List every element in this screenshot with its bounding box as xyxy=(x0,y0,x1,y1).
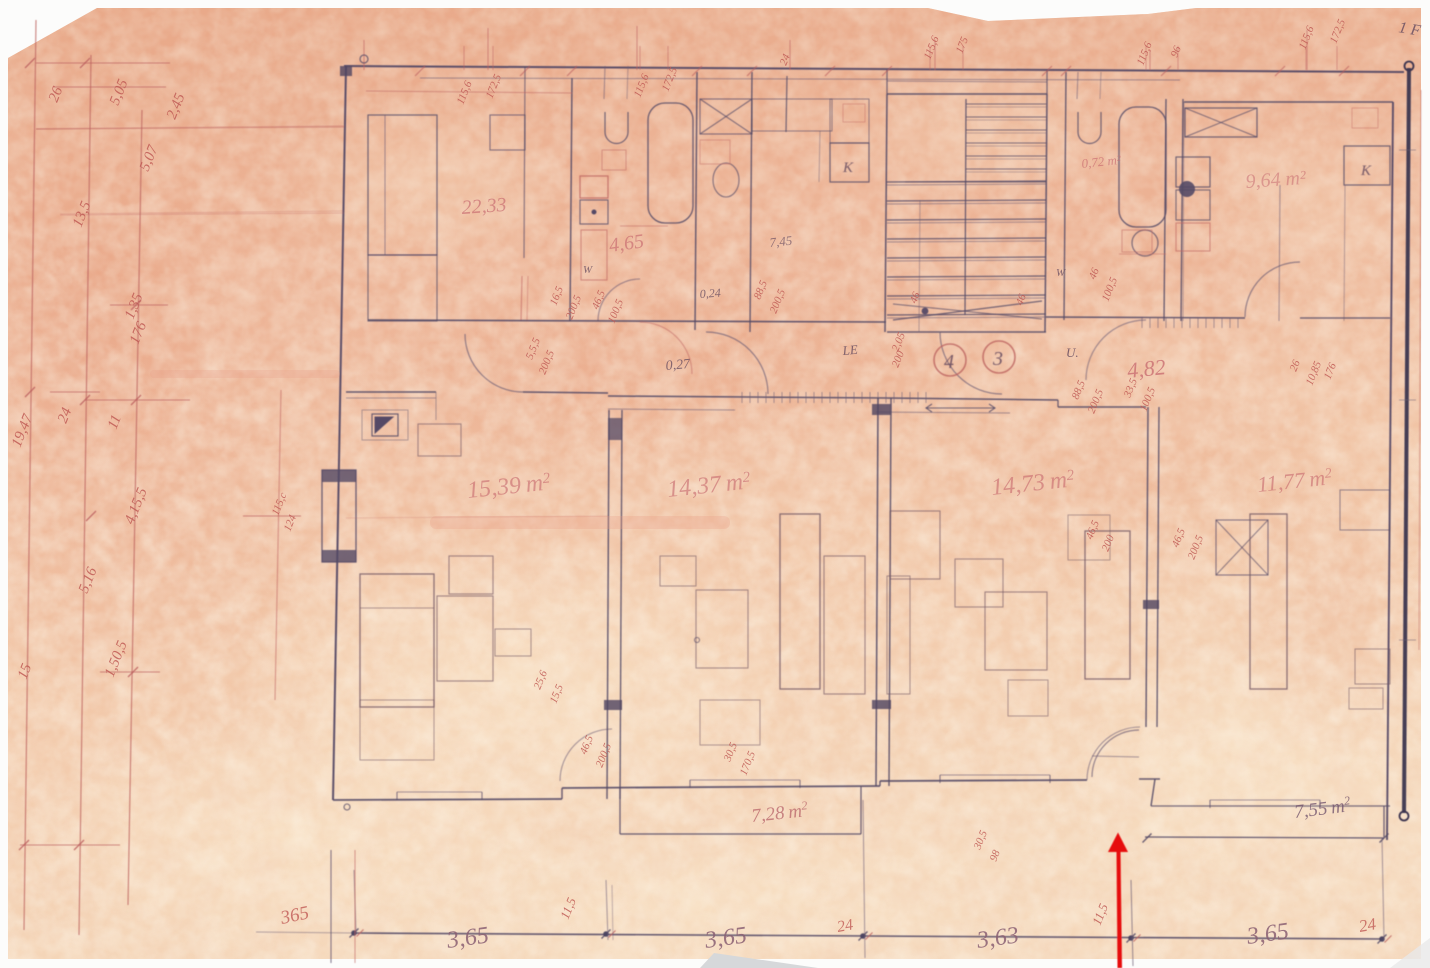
svg-text:K: K xyxy=(1360,163,1372,179)
svg-text:24: 24 xyxy=(836,916,855,936)
svg-text:4: 4 xyxy=(944,351,954,373)
svg-text:0,24: 0,24 xyxy=(699,286,721,301)
svg-text:LE: LE xyxy=(841,342,858,358)
svg-text:W: W xyxy=(1056,267,1066,279)
svg-text:U.: U. xyxy=(1066,345,1079,360)
svg-text:K: K xyxy=(842,160,854,176)
svg-text:9,64 m²: 9,64 m² xyxy=(1245,167,1308,193)
svg-text:3: 3 xyxy=(992,348,1003,370)
svg-text:22,33: 22,33 xyxy=(461,194,507,219)
svg-text:0,27: 0,27 xyxy=(665,357,692,374)
svg-text:7,45: 7,45 xyxy=(769,233,794,250)
svg-text:W: W xyxy=(583,264,593,276)
